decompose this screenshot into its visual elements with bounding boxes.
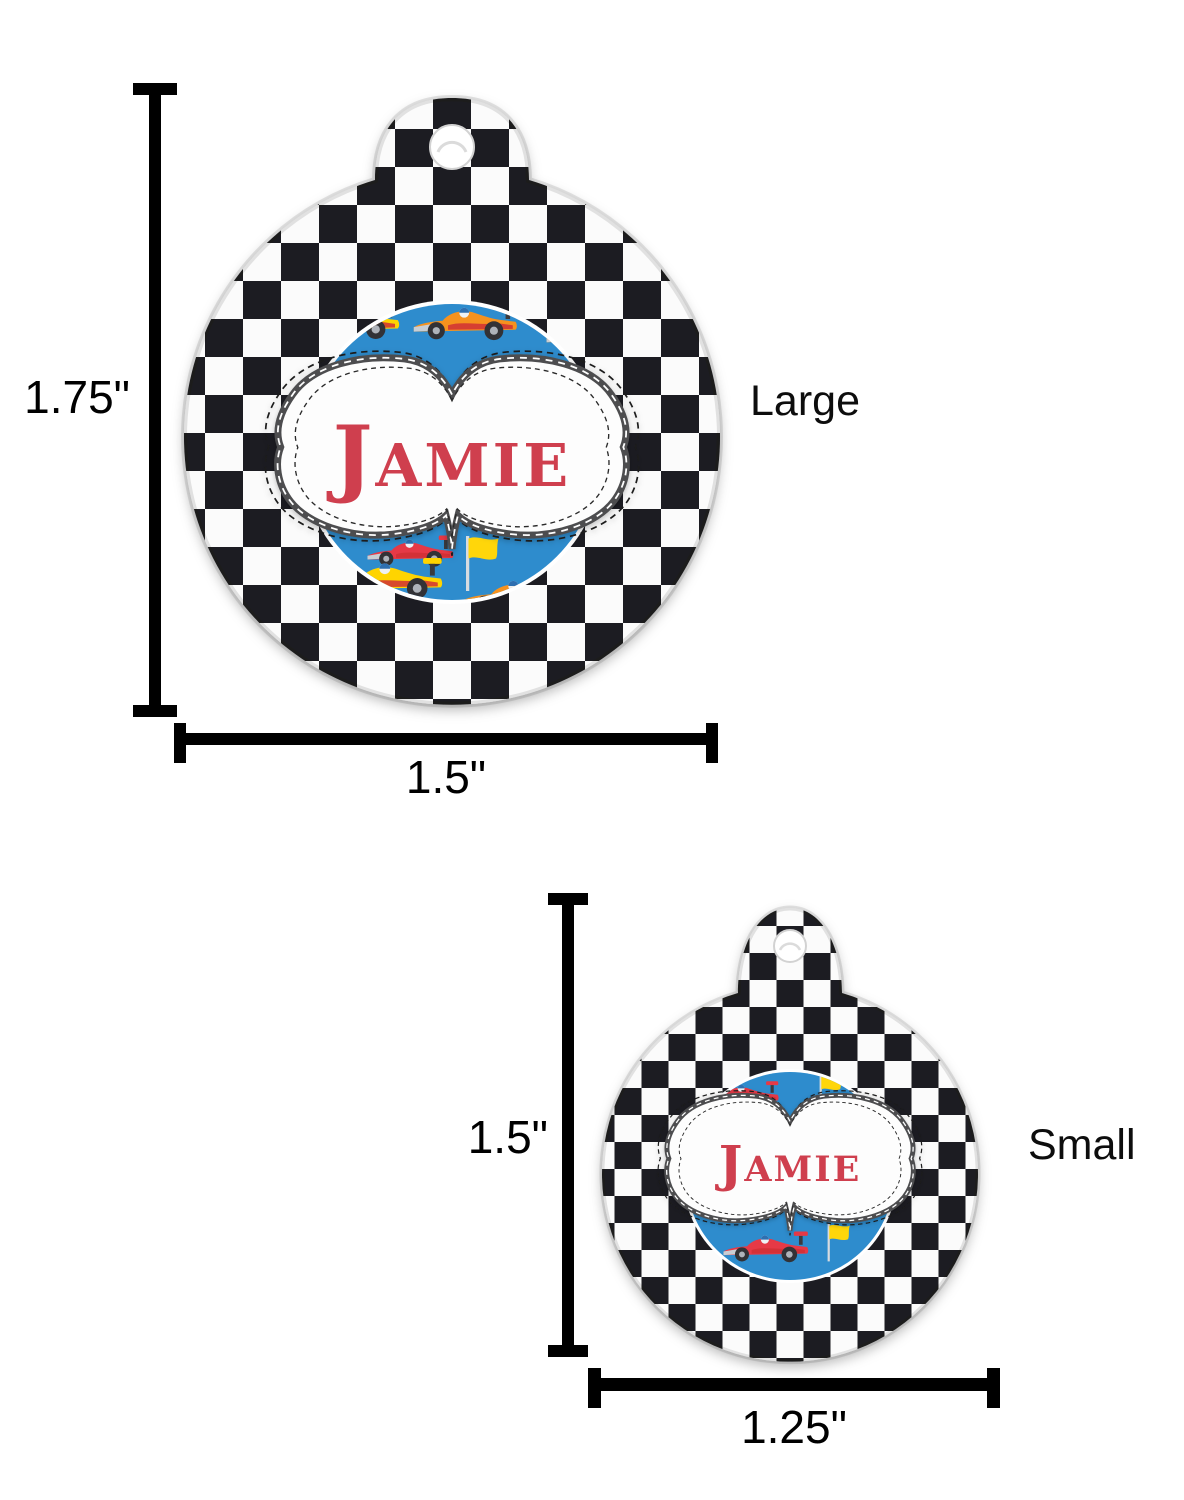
small-width-dim-label: 1.25" (588, 1402, 1000, 1453)
large-width-dim-line (174, 733, 718, 745)
pet-tag-size-diagram: Jamie 1.75" 1.5" Large (0, 0, 1184, 1500)
small-size-label: Small (1028, 1124, 1136, 1167)
large-tag-name-text: Jamie (252, 415, 652, 499)
small-tag-hole-icon (774, 930, 806, 962)
small-tag-image (530, 870, 1010, 1390)
large-height-dim-label: 1.75" (0, 372, 130, 423)
large-height-dim-cap-bottom (133, 705, 177, 717)
small-width-dim-line (588, 1378, 1000, 1391)
large-tag-hole-icon (430, 125, 474, 169)
small-height-dim-cap-bottom (548, 1345, 588, 1357)
large-width-dim-label: 1.5" (174, 752, 718, 803)
large-height-dim-line (149, 83, 161, 717)
large-tag-image (120, 70, 780, 730)
small-tag-name-text: Jamie (640, 1139, 940, 1189)
large-size-label: Large (750, 380, 860, 423)
small-height-dim-label: 1.5" (418, 1112, 548, 1163)
small-height-dim-line (562, 893, 574, 1357)
